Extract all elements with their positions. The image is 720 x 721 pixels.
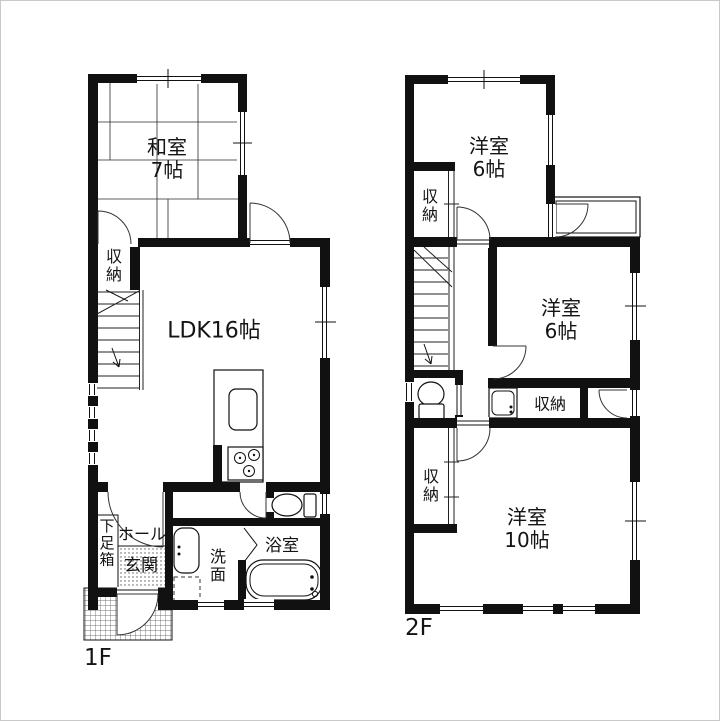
door-sill — [457, 236, 489, 248]
balcony — [552, 197, 640, 237]
window — [563, 603, 595, 615]
door-sill — [457, 417, 489, 429]
room-label-bedroom-c: 洋室 — [507, 505, 547, 529]
room-size-bedroom-a: 6帖 — [473, 157, 506, 181]
balcony-door-opening — [545, 204, 556, 237]
window — [403, 382, 416, 402]
room-size-bedroom-b: 6帖 — [545, 319, 578, 343]
window — [440, 603, 483, 615]
window — [244, 599, 274, 611]
room-label-bathroom: 浴室 — [265, 536, 299, 556]
door-opening — [629, 390, 641, 416]
room-label-shoe-cabinet: 下足箱 — [99, 517, 114, 569]
toilet-bowl — [272, 494, 302, 516]
terrace-door-sill — [250, 237, 290, 248]
window — [523, 603, 553, 615]
floor-plan-image: 和室 7帖 LDK16帖 収納 下足箱 ホール 玄関 洗面 浴室 1F — [0, 0, 720, 721]
washbasin-2f — [489, 388, 517, 418]
room-size-washitsu: 7帖 — [151, 158, 184, 182]
floor-plan-svg: 和室 7帖 LDK16帖 収納 下足箱 ホール 玄関 洗面 浴室 1F — [0, 0, 720, 721]
room-label-closet-a: 収納 — [422, 187, 438, 224]
toilet-1f — [272, 494, 316, 517]
room-label-washitsu: 和室 — [147, 135, 187, 159]
bathtub — [246, 560, 322, 600]
window — [198, 599, 224, 611]
room-label-entrance: 玄関 — [124, 556, 158, 576]
room-label-bedroom-b: 洋室 — [541, 296, 581, 320]
basin-bowl — [174, 528, 199, 573]
room-label-washroom: 洗面 — [210, 547, 226, 584]
window — [545, 115, 556, 165]
room-label-closet-1f: 収納 — [106, 247, 122, 284]
room-label-bedroom-a: 洋室 — [469, 134, 509, 158]
toilet-tank — [419, 404, 444, 419]
door-opening — [454, 385, 464, 415]
toilet-2f — [418, 382, 444, 419]
toilet-tank — [304, 494, 316, 517]
toilet-bowl — [418, 382, 444, 406]
floor-label-1f: 1F — [84, 645, 112, 671]
room-label-ldk: LDK16帖 — [167, 319, 261, 344]
floor-label-2f: 2F — [405, 615, 433, 641]
kitchen-sink — [229, 389, 257, 430]
window — [319, 494, 331, 514]
room-label-hall: ホール — [118, 525, 166, 544]
room-size-bedroom-c: 10帖 — [504, 528, 549, 552]
room-label-closet-b: 収納 — [534, 395, 566, 414]
room-label-closet-c: 収納 — [423, 467, 439, 504]
